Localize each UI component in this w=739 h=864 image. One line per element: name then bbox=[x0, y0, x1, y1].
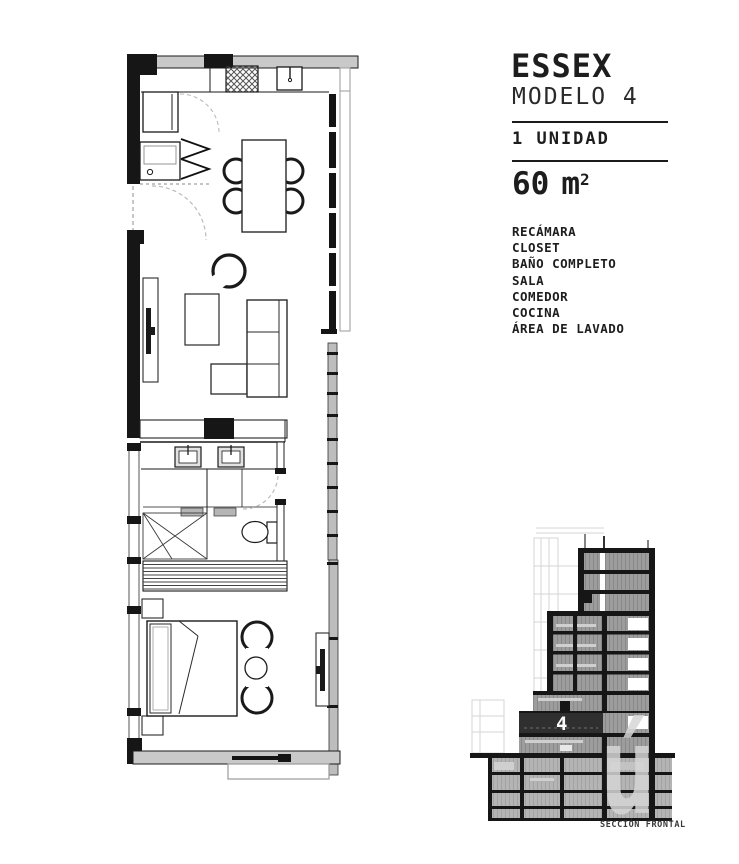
section-caption: SECCIÓN FRONTAL bbox=[600, 818, 686, 830]
balcony-edge bbox=[228, 764, 329, 779]
bathroom-sink-icon bbox=[175, 445, 244, 467]
shower-niche bbox=[214, 508, 236, 516]
area-exponent: 2 bbox=[580, 170, 590, 189]
kitchen-sink-icon bbox=[277, 67, 302, 90]
units-label: 1 UNIDAD bbox=[512, 129, 610, 149]
tv-console-icon bbox=[143, 278, 158, 382]
left-window-band bbox=[127, 443, 142, 764]
bathroom bbox=[141, 420, 286, 561]
living-room bbox=[143, 255, 287, 397]
feature-item: RECÁMARA bbox=[512, 224, 624, 240]
left-wall bbox=[127, 54, 144, 438]
bedroom bbox=[142, 599, 329, 735]
washer-icon bbox=[140, 142, 180, 180]
unit-floor-number: 4 bbox=[556, 713, 567, 735]
building-section: 4 ú SECCIÓN FRONTAL bbox=[470, 528, 686, 842]
coffee-table-icon bbox=[185, 294, 219, 345]
toilet-icon bbox=[242, 522, 277, 544]
interior-wall bbox=[140, 418, 287, 442]
side-table-icon bbox=[245, 657, 267, 679]
shower-niche bbox=[181, 508, 203, 516]
feature-item: CLOSET bbox=[512, 240, 624, 256]
model-title: ESSEX bbox=[511, 47, 612, 85]
laundry-area bbox=[140, 92, 219, 240]
bifold-door-icon bbox=[181, 139, 209, 179]
shower-icon bbox=[143, 513, 207, 559]
section-upper-tower bbox=[578, 534, 655, 613]
feature-item: COMEDOR bbox=[512, 289, 624, 305]
feature-list: RECÁMARA CLOSET BAÑO COMPLETO SALA COMED… bbox=[512, 224, 624, 337]
drawing-canvas: 4 ú SECCIÓN FRONTAL bbox=[0, 0, 739, 864]
sofa-icon bbox=[211, 300, 287, 397]
nightstand-icon bbox=[142, 716, 163, 735]
bottom-wall bbox=[133, 751, 340, 779]
stove-icon bbox=[226, 66, 258, 92]
closet-door-arc bbox=[180, 94, 219, 133]
bedroom-tv-console-icon bbox=[316, 633, 329, 706]
dining-table-icon bbox=[242, 140, 286, 232]
area-value: 60m2 bbox=[512, 166, 590, 202]
divider-rule bbox=[512, 121, 668, 123]
entry-door-arc bbox=[152, 186, 206, 240]
closet-shelves-icon bbox=[143, 561, 287, 591]
feature-item: BAÑO COMPLETO bbox=[512, 256, 624, 272]
armchair-icon bbox=[204, 255, 245, 295]
section-mid-block bbox=[547, 611, 655, 693]
feature-item: COCINA bbox=[512, 305, 624, 321]
dining-area bbox=[224, 140, 303, 232]
model-subtitle: MODELO 4 bbox=[512, 84, 639, 110]
area-number: 60 bbox=[512, 166, 549, 202]
floor-plan bbox=[127, 54, 358, 779]
divider-rule bbox=[512, 160, 668, 162]
bed-icon bbox=[147, 621, 237, 716]
area-unit: m bbox=[561, 166, 580, 202]
kitchen bbox=[141, 66, 329, 92]
feature-item: SALA bbox=[512, 273, 624, 289]
refrigerator-icon bbox=[143, 92, 178, 132]
plan-sheet: 4 ú SECCIÓN FRONTAL ESSEX MODELO 4 1 UNI… bbox=[0, 0, 739, 864]
nightstand-icon bbox=[142, 599, 163, 618]
bathroom-door-arc bbox=[243, 474, 278, 509]
feature-item: ÁREA DE LAVADO bbox=[512, 321, 624, 337]
